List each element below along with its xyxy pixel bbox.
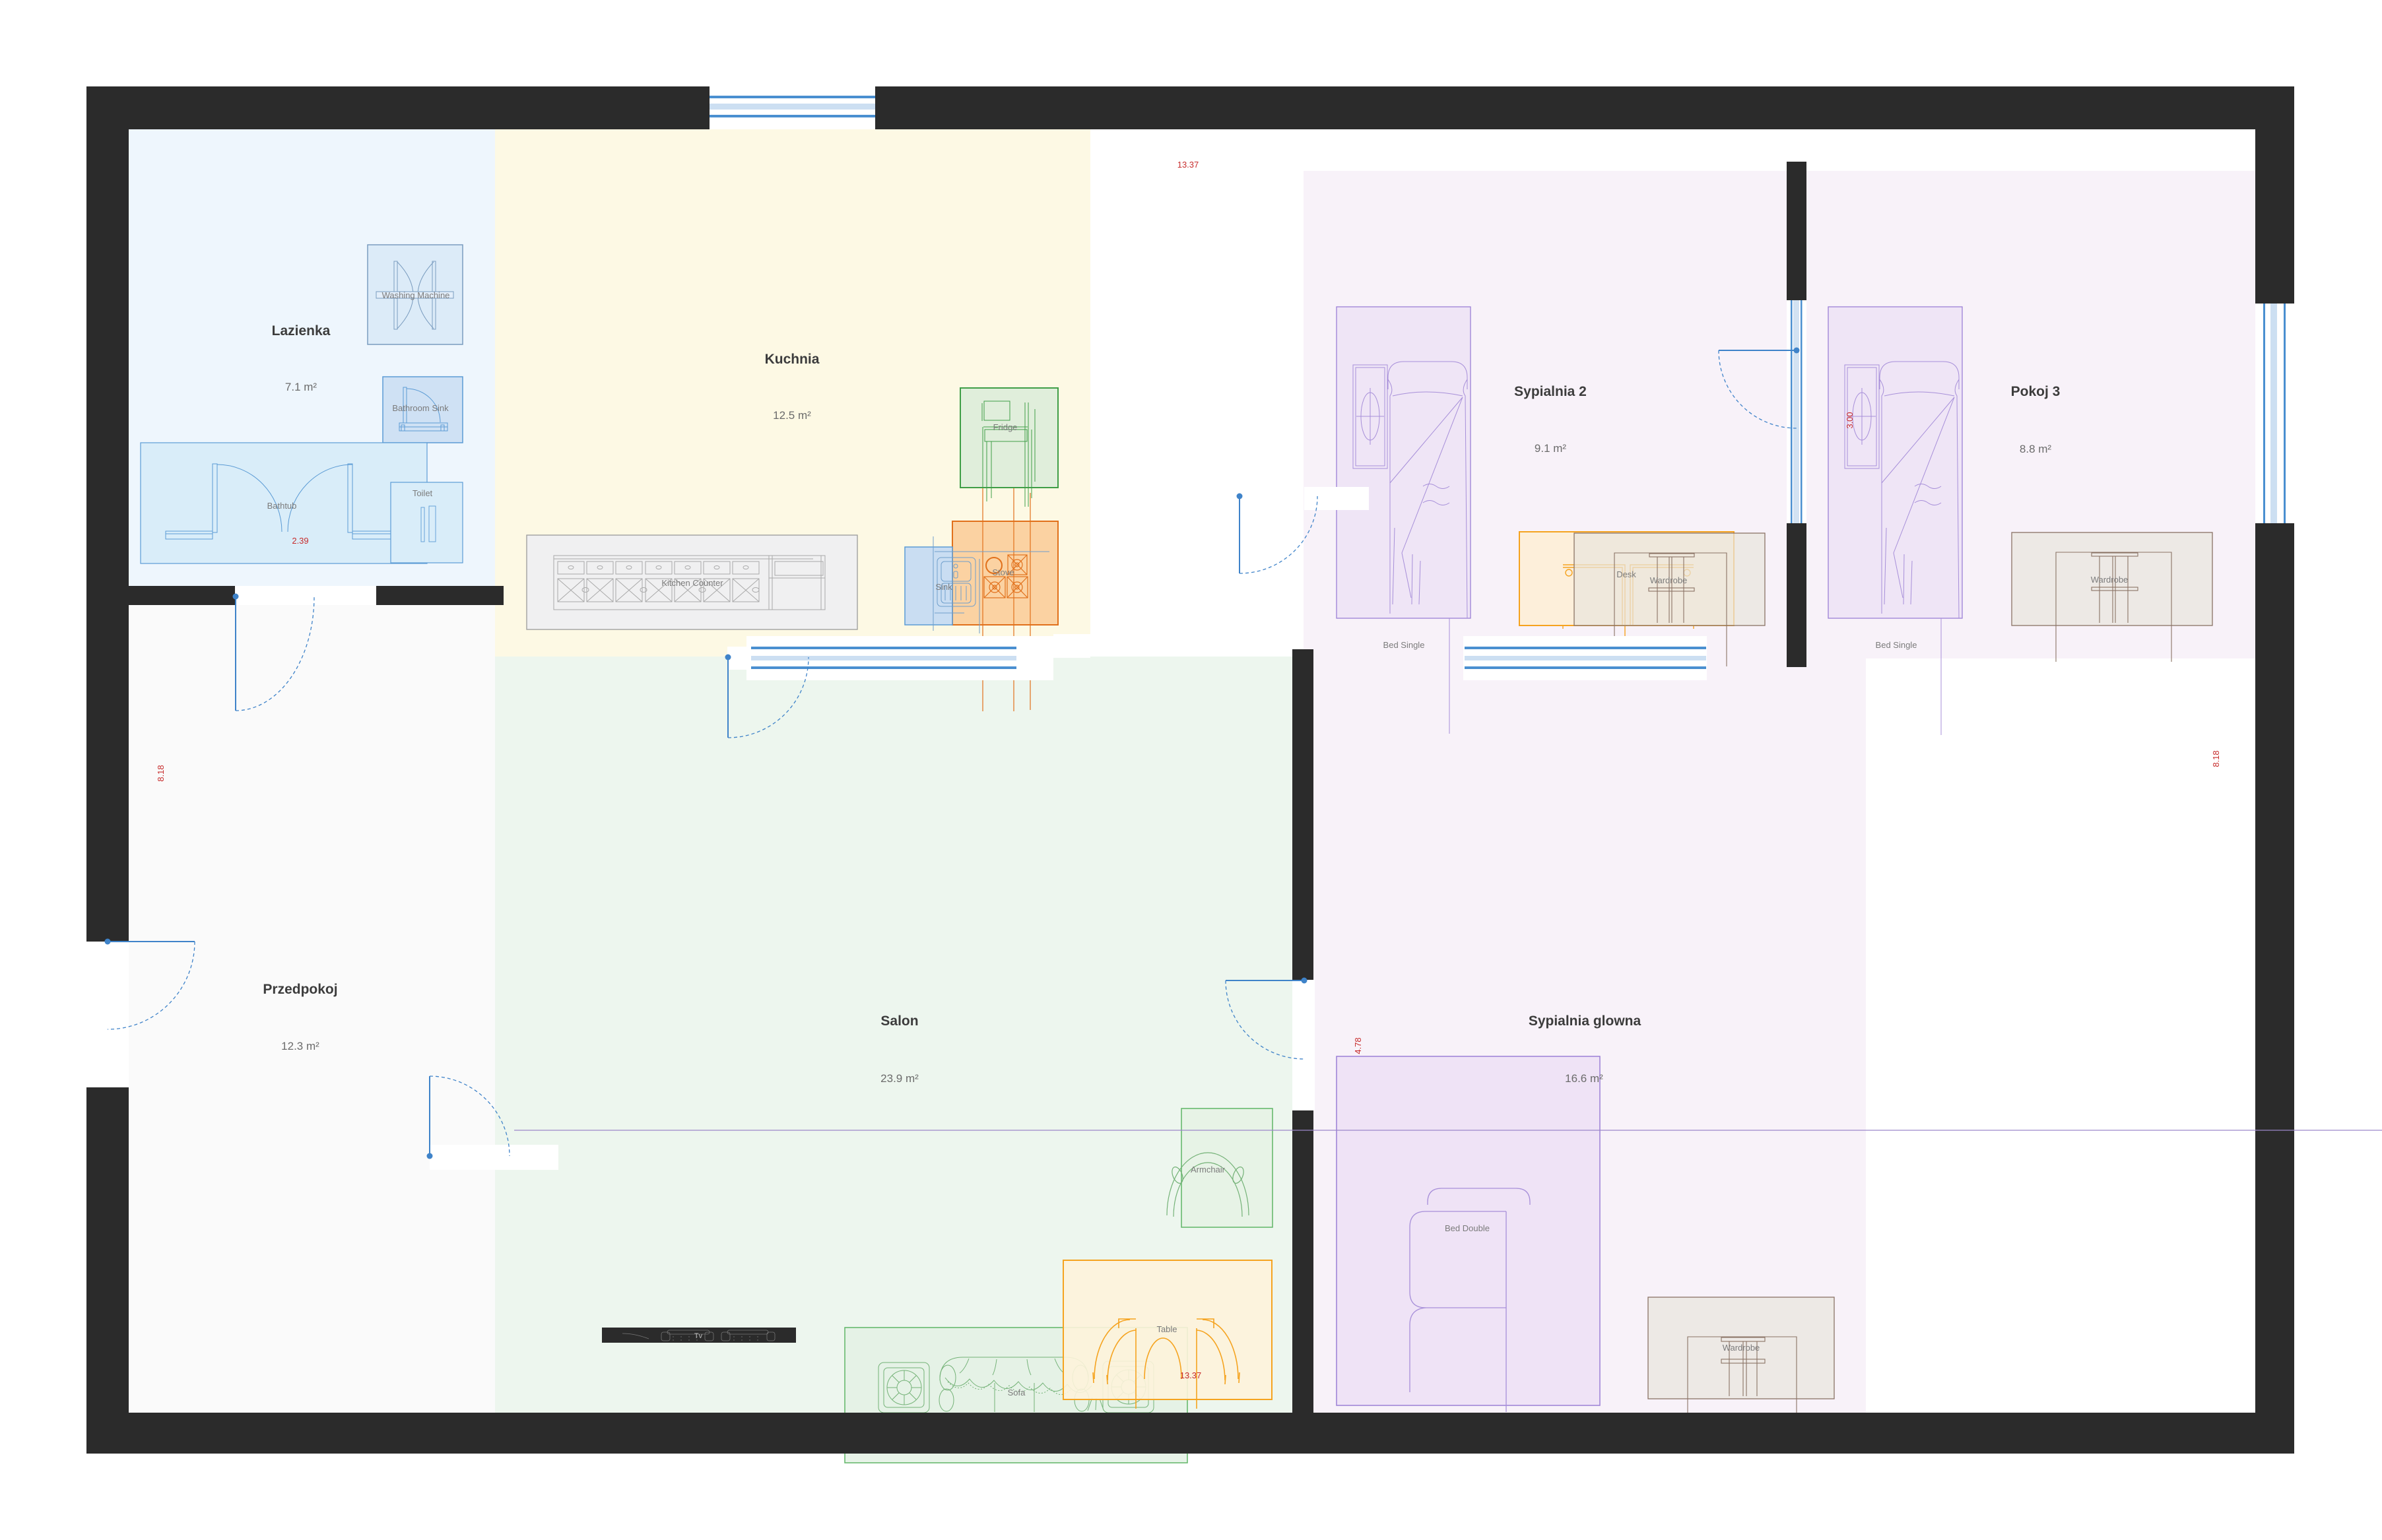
svg-text:8.8 m²: 8.8 m² bbox=[2020, 443, 2052, 455]
svg-text:8.18: 8.18 bbox=[156, 765, 166, 781]
svg-text:2.39: 2.39 bbox=[292, 536, 308, 546]
svg-text:Sypialnia 2: Sypialnia 2 bbox=[1514, 384, 1587, 399]
svg-text:12.3 m²: 12.3 m² bbox=[281, 1040, 319, 1052]
svg-text:9.1 m²: 9.1 m² bbox=[1535, 442, 1567, 455]
svg-text:Wardrobe: Wardrobe bbox=[1723, 1343, 1760, 1353]
svg-text:Stove: Stove bbox=[992, 567, 1014, 577]
svg-text:Przedpokoj: Przedpokoj bbox=[263, 982, 337, 997]
svg-text:Lazienka: Lazienka bbox=[272, 323, 331, 338]
svg-text:13.37: 13.37 bbox=[1177, 160, 1199, 170]
svg-text:Pokoj 3: Pokoj 3 bbox=[2011, 384, 2061, 399]
svg-text:Bed Single: Bed Single bbox=[1876, 640, 1917, 650]
svg-text:Toilet: Toilet bbox=[413, 488, 433, 498]
svg-text:8.18: 8.18 bbox=[2211, 750, 2221, 767]
svg-text:4.78: 4.78 bbox=[1353, 1037, 1363, 1054]
svg-text:3.00: 3.00 bbox=[1845, 412, 1855, 428]
svg-text:Kitchen Counter: Kitchen Counter bbox=[661, 578, 723, 588]
svg-text:Fridge: Fridge bbox=[993, 422, 1018, 432]
svg-text:Wardrobe: Wardrobe bbox=[2091, 575, 2129, 585]
svg-text:Bathtub: Bathtub bbox=[267, 501, 297, 511]
svg-text:Sofa: Sofa bbox=[1008, 1388, 1026, 1397]
svg-text:Sypialnia glowna: Sypialnia glowna bbox=[1529, 1013, 1641, 1029]
svg-text:Washing Machine: Washing Machine bbox=[382, 290, 450, 300]
svg-text:Kuchnia: Kuchnia bbox=[765, 352, 820, 367]
svg-text:Desk: Desk bbox=[1616, 569, 1636, 579]
svg-text:Armchair: Armchair bbox=[1191, 1165, 1226, 1174]
svg-text:Salon: Salon bbox=[880, 1013, 918, 1029]
svg-text:16.6 m²: 16.6 m² bbox=[1565, 1072, 1603, 1085]
svg-text:12.5 m²: 12.5 m² bbox=[773, 409, 811, 422]
svg-text:Sink: Sink bbox=[935, 582, 952, 592]
svg-text:13.37: 13.37 bbox=[1180, 1370, 1202, 1380]
svg-text:23.9 m²: 23.9 m² bbox=[880, 1072, 919, 1085]
svg-text:7.1 m²: 7.1 m² bbox=[285, 381, 317, 393]
svg-text:Bed Single: Bed Single bbox=[1383, 640, 1425, 650]
svg-text:Bed Double: Bed Double bbox=[1445, 1223, 1490, 1233]
svg-text:Table: Table bbox=[1156, 1324, 1177, 1334]
svg-text:Wardrobe: Wardrobe bbox=[1650, 575, 1688, 585]
svg-text:Tv: Tv bbox=[694, 1332, 703, 1340]
svg-text:Bathroom Sink: Bathroom Sink bbox=[392, 403, 449, 413]
